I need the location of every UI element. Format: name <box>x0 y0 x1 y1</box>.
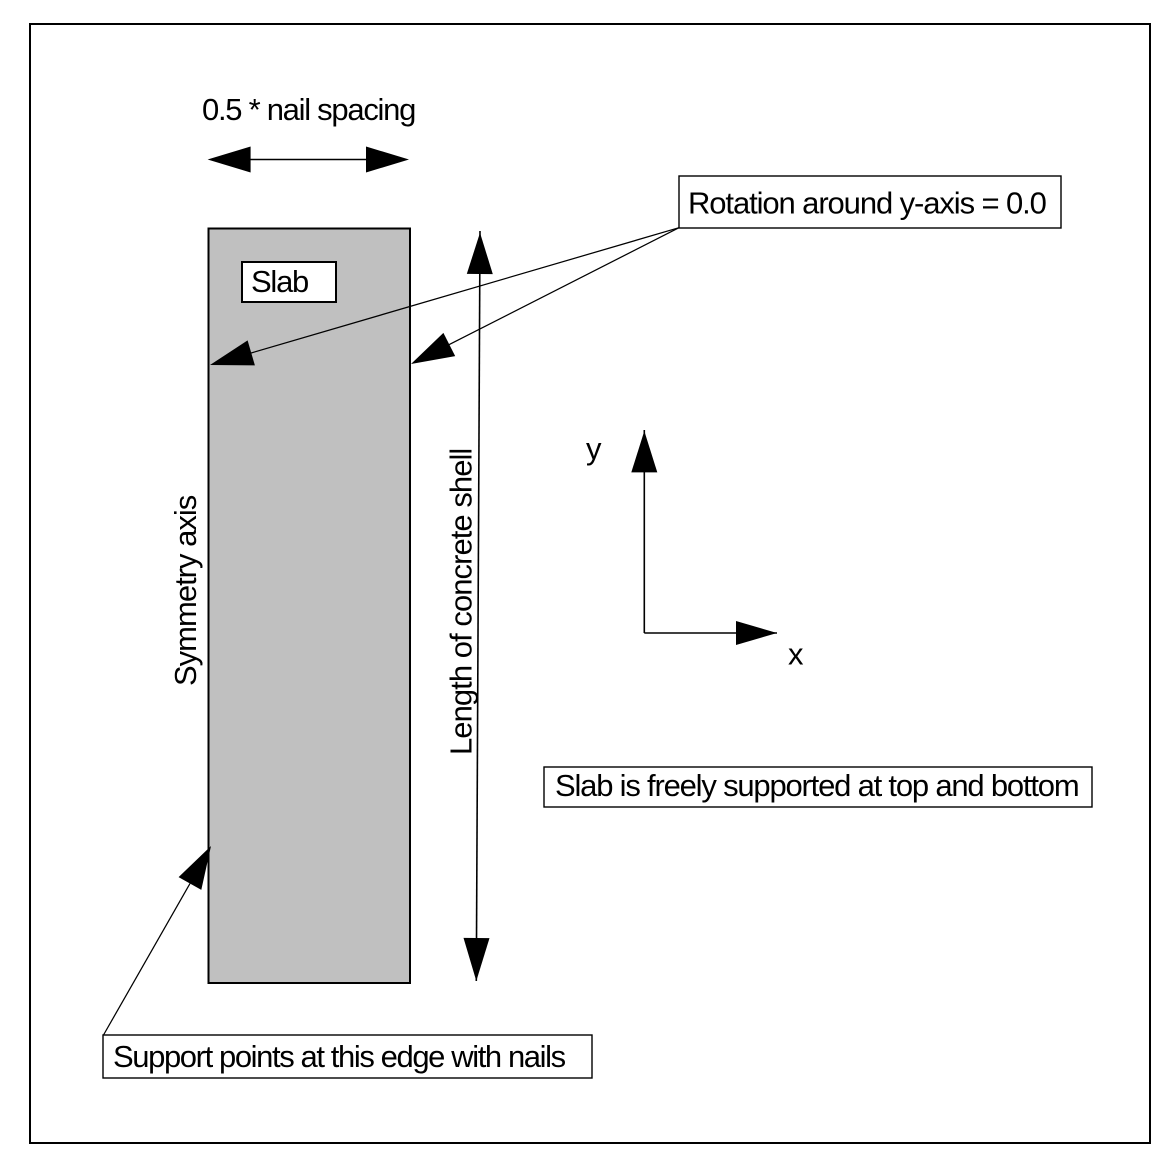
svg-text:x: x <box>788 637 804 672</box>
svg-text:Rotation around y-axis = 0.0: Rotation around y-axis = 0.0 <box>688 186 1047 221</box>
svg-text:Support points at this edge wi: Support points at this edge with nails <box>113 1039 566 1074</box>
svg-text:Slab: Slab <box>251 264 308 299</box>
svg-text:Symmetry axis: Symmetry axis <box>168 495 203 686</box>
svg-text:0.5 * nail spacing: 0.5 * nail spacing <box>202 92 415 127</box>
svg-text:Slab is freely supported at to: Slab is freely supported at top and bott… <box>555 768 1078 803</box>
svg-text:y: y <box>586 431 602 466</box>
svg-text:Length of concrete shell: Length of concrete shell <box>444 449 479 755</box>
